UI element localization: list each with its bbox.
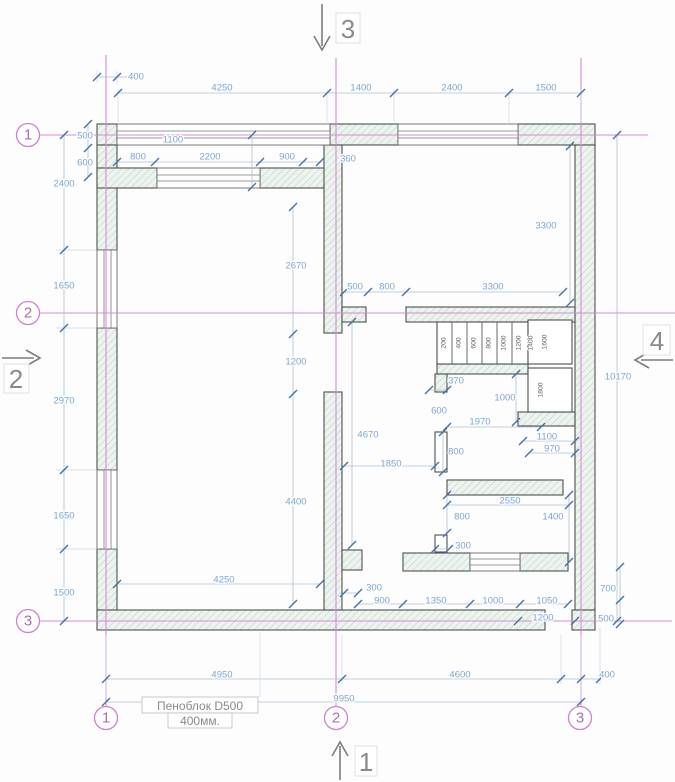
section-label: 2 — [9, 364, 23, 394]
dim-label: 2400 — [441, 83, 462, 94]
window-bottom — [470, 553, 520, 571]
window-left-1 — [97, 250, 117, 328]
section-label: 4 — [650, 326, 664, 356]
section-mark-bottom: 1 — [332, 742, 377, 780]
dim-label: 2670 — [285, 261, 306, 272]
dim-label: 300 — [366, 583, 382, 594]
axis-label: 3 — [576, 710, 584, 727]
axis-marker-bottom-3: 3 — [569, 707, 592, 730]
dim-label: 800 — [130, 152, 146, 163]
axis-marker-left-1: 1 — [17, 124, 40, 147]
dim-label: 360 — [340, 154, 356, 165]
material-note-line2: 400мм. — [180, 714, 220, 728]
dim-label: 970 — [544, 444, 560, 455]
stair-step-label: 1600 — [542, 334, 549, 349]
dim-label: 1000 — [482, 596, 503, 607]
dim-label: 1000 — [494, 393, 515, 404]
dim-label: 1050 — [536, 596, 557, 607]
dim-label: 900 — [374, 596, 390, 607]
dim-label: 1650 — [53, 511, 74, 522]
dim-label: 4400 — [285, 497, 306, 508]
dim-label: 1400 — [542, 512, 563, 523]
window-left-2 — [97, 470, 117, 549]
dim-label: 1200 — [285, 357, 306, 368]
dim-label: 10170 — [605, 372, 631, 383]
axis-marker-left-2: 2 — [17, 302, 40, 325]
dim-label: 400 — [128, 72, 144, 83]
section-mark-right: 4 — [635, 325, 673, 368]
dim-label: 600 — [431, 406, 447, 417]
dim-label: 800 — [454, 512, 470, 523]
stair-step-label: 1800 — [538, 382, 545, 397]
axis-marker-bottom-2: 2 — [325, 707, 348, 730]
stair-step-label: 1200 — [516, 335, 523, 350]
dim-label: 700 — [600, 584, 616, 595]
section-label: 1 — [359, 747, 373, 777]
dim-label: 900 — [279, 152, 295, 163]
dim-label: 4950 — [211, 670, 232, 681]
dim-label: 500 — [347, 282, 363, 293]
axis-label: 1 — [102, 710, 110, 727]
stair-step-label: 600 — [471, 337, 478, 349]
stair-step-label: 200 — [441, 337, 448, 349]
dim-label: 2550 — [499, 496, 520, 507]
dim-label: 400 — [599, 670, 615, 681]
dim-label: 1200 — [532, 613, 553, 624]
section-arrow-up-icon — [332, 742, 348, 780]
stair-flight — [437, 322, 528, 364]
stair-step-label: 1400 — [528, 335, 535, 350]
dim-label: 1650 — [53, 281, 74, 292]
dim-label: 3300 — [482, 282, 503, 293]
stair-step-label: 800 — [486, 337, 493, 349]
axis-label: 2 — [24, 305, 32, 322]
section-mark-left: 2 — [2, 350, 40, 394]
stair-step-label: 1000 — [501, 335, 508, 350]
section-mark-top: 3 — [314, 4, 360, 50]
dim-label: 600 — [77, 158, 93, 169]
dim-label: 1100 — [537, 432, 557, 443]
dim-label: 800 — [448, 447, 464, 458]
axis-label: 3 — [24, 613, 32, 630]
dim-label: 300 — [455, 541, 471, 552]
stair-landing-lower — [528, 368, 572, 412]
dim-label: 4250 — [211, 83, 232, 94]
dim-label: 500 — [598, 614, 614, 625]
section-label: 3 — [341, 14, 355, 44]
axis-label: 1 — [24, 127, 32, 144]
section-arrow-down-icon — [314, 4, 330, 50]
axis-marker-left-3: 3 — [17, 610, 40, 633]
floor-plan-drawing: 4004250140024001500500110060080022009003… — [0, 0, 675, 782]
dim-label: 2200 — [199, 152, 220, 163]
material-note: Пеноблок D500 400мм. — [142, 632, 260, 728]
stair-landing-upper — [528, 320, 572, 364]
dim-label: 4670 — [357, 430, 378, 441]
dim-label: 4250 — [213, 575, 234, 586]
dim-label: 9950 — [333, 694, 354, 705]
window-inner — [157, 168, 260, 188]
dim-label: 800 — [379, 282, 395, 293]
dim-label: 1850 — [380, 459, 401, 470]
material-note-line1: Пеноблок D500 — [157, 699, 243, 713]
axis-label: 2 — [332, 710, 340, 727]
dim-label: 2400 — [53, 179, 74, 190]
dim-label: 1400 — [350, 83, 371, 94]
dim-label: 4600 — [449, 670, 470, 681]
floor-plan-page: 4004250140024001500500110060080022009003… — [0, 0, 675, 782]
dim-label: 1500 — [535, 83, 556, 94]
dim-label: 1500 — [53, 588, 74, 599]
axis-marker-bottom-1: 1 — [95, 707, 118, 730]
dim-label: 500 — [77, 131, 93, 142]
dim-label: 2970 — [53, 396, 74, 407]
stair-step-label: 400 — [456, 337, 463, 349]
dim-label: 1970 — [469, 417, 490, 428]
dim-label: 1350 — [425, 596, 446, 607]
dim-label: 1100 — [163, 135, 183, 146]
dim-label: 370 — [448, 376, 464, 387]
dim-label: 3300 — [535, 221, 556, 232]
